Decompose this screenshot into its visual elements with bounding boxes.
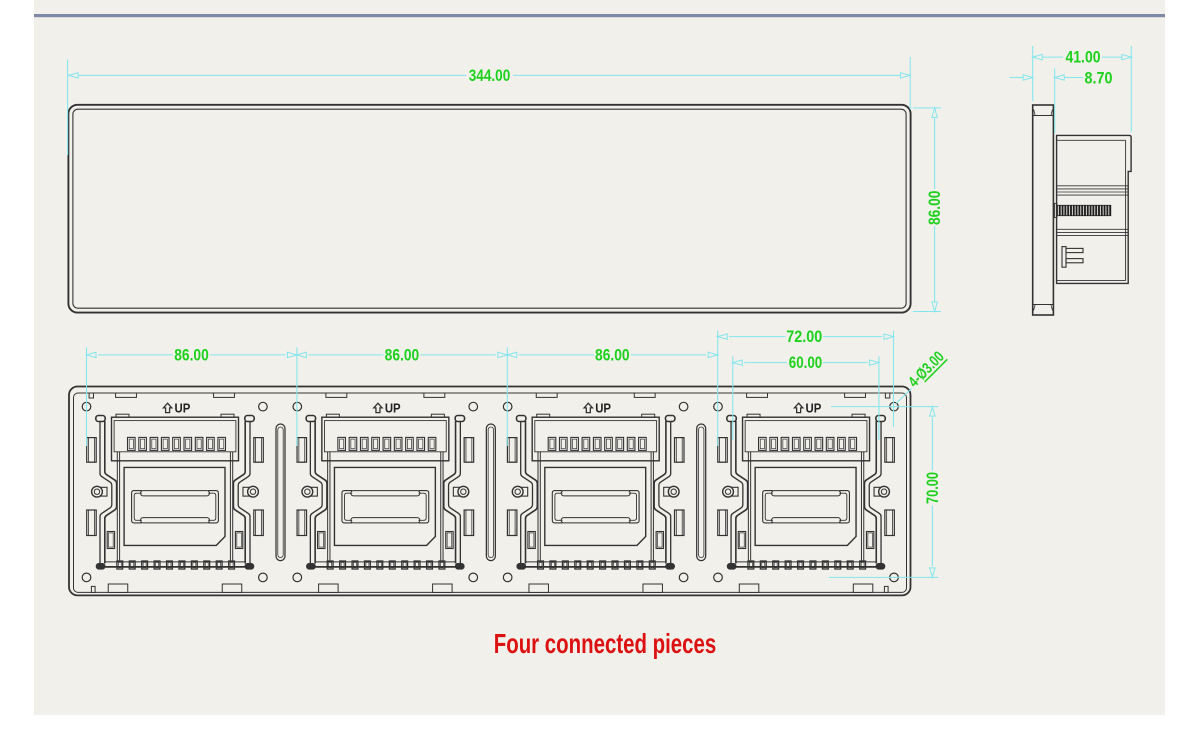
svg-text:8.70: 8.70 — [1085, 69, 1113, 88]
svg-text:Four connected pieces: Four connected pieces — [494, 628, 717, 659]
svg-text:UP: UP — [806, 400, 822, 415]
svg-text:41.00: 41.00 — [1066, 48, 1101, 67]
svg-text:86.00: 86.00 — [595, 345, 630, 364]
svg-text:UP: UP — [595, 400, 611, 415]
svg-text:60.00: 60.00 — [789, 353, 823, 372]
svg-text:72.00: 72.00 — [786, 327, 822, 346]
svg-text:UP: UP — [175, 400, 191, 415]
svg-text:70.00: 70.00 — [923, 472, 942, 504]
svg-text:86.00: 86.00 — [385, 345, 420, 364]
svg-text:UP: UP — [385, 400, 401, 415]
svg-text:344.00: 344.00 — [469, 66, 511, 85]
svg-text:86.00: 86.00 — [925, 191, 944, 226]
svg-text:86.00: 86.00 — [174, 345, 209, 364]
